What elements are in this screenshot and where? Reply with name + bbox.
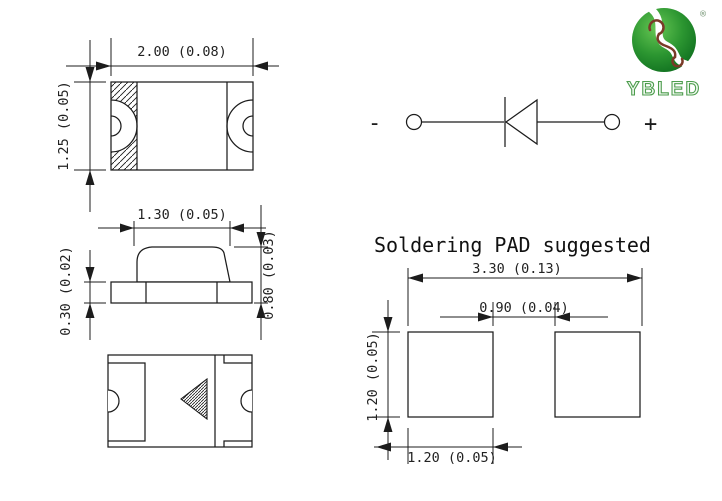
arrowhead xyxy=(384,417,393,432)
arrowhead xyxy=(120,224,134,233)
pad-width-dimension: 1.20 (0.05) xyxy=(374,428,522,466)
logo-brand-text: YBLED xyxy=(627,79,701,100)
top-view-body xyxy=(85,82,279,170)
bottom-view-drawing xyxy=(97,355,263,447)
arrowhead xyxy=(86,67,95,82)
drawing-canvas: 2.00 (0.08) 1.25 (0.05) 1.30 (0.05) xyxy=(0,0,722,501)
diode-triangle xyxy=(506,100,537,144)
arrowhead xyxy=(86,170,95,185)
cathode-terminal-circle xyxy=(407,115,422,130)
anode-terminal-circle xyxy=(605,115,620,130)
left-solder-pad xyxy=(408,332,493,417)
pad-gap-dimension: 0.90 (0.04) xyxy=(440,300,608,326)
top-view-drawing: 2.00 (0.08) 1.25 (0.05) xyxy=(56,38,279,212)
pad-overall-width-label: 3.30 (0.13) xyxy=(472,261,561,277)
pad-overall-width-dimension: 3.30 (0.13) xyxy=(408,261,642,326)
arrowhead xyxy=(408,274,423,283)
minus-sign: - xyxy=(368,111,381,136)
right-solder-pad xyxy=(555,332,640,417)
datasheet-page: 2.00 (0.08) 1.25 (0.05) 1.30 (0.05) xyxy=(0,0,722,501)
side-width-dimension: 1.30 (0.05) xyxy=(98,207,266,246)
side-view-drawing: 1.30 (0.05) 0.30 (0.02) 0.80 (0.03) xyxy=(58,205,277,340)
arrowhead xyxy=(86,267,95,282)
yb-logo: YBLED ® xyxy=(627,8,707,100)
side-base-height-label: 0.30 (0.02) xyxy=(58,246,74,335)
bottom-left-notch xyxy=(97,390,119,412)
side-width-label: 1.30 (0.05) xyxy=(137,207,226,223)
bottom-view-outline xyxy=(108,355,252,447)
top-width-dimension: 2.00 (0.08) xyxy=(66,38,279,76)
soldering-pad-title: Soldering PAD suggested xyxy=(374,233,651,257)
pad-layout-drawing: 3.30 (0.13) 0.90 (0.04) 1.20 (0.05) xyxy=(365,261,642,466)
arrowhead xyxy=(230,224,244,233)
side-base xyxy=(111,282,252,303)
side-base-height-dimension: 0.30 (0.02) xyxy=(58,246,106,340)
arrowhead xyxy=(253,62,268,71)
top-width-label: 2.00 (0.08) xyxy=(137,44,226,60)
top-height-label: 1.25 (0.05) xyxy=(56,81,72,170)
pad-height-dimension: 1.20 (0.05) xyxy=(365,300,400,460)
pad-height-label: 1.20 (0.05) xyxy=(365,332,381,421)
plus-sign: + xyxy=(644,112,657,137)
pad-width-label: 1.20 (0.05) xyxy=(407,450,496,466)
bottom-right-notch xyxy=(241,390,263,412)
arrowhead xyxy=(96,62,111,71)
registered-mark: ® xyxy=(700,9,707,20)
arrowhead xyxy=(384,317,393,332)
side-total-height-label: 0.80 (0.03) xyxy=(261,230,277,319)
pad-gap-label: 0.90 (0.04) xyxy=(479,300,568,316)
arrowhead xyxy=(627,274,642,283)
arrowhead xyxy=(376,443,391,452)
arrowhead xyxy=(86,303,95,318)
lens-dome xyxy=(137,247,230,282)
diode-symbol: - + xyxy=(368,97,657,147)
